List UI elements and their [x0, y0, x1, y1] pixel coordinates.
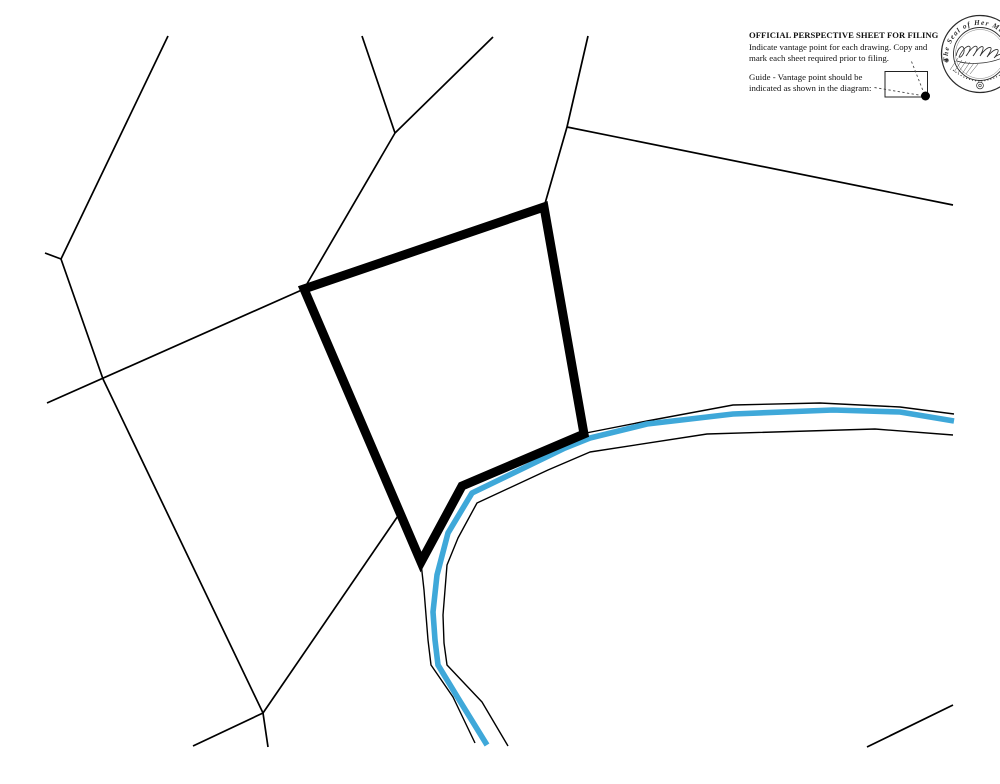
- parcel-line-south-tail: [193, 713, 263, 746]
- sheet-title: OFFICIAL PERSPECTIVE SHEET FOR FILING: [749, 30, 959, 41]
- map-canvas: The Seal of Her Maj ⊕: [0, 0, 1000, 784]
- parcel-line-south-connector: [263, 513, 400, 713]
- filing-instructions: OFFICIAL PERSPECTIVE SHEET FOR FILING In…: [749, 30, 959, 94]
- guide-line-2: indicated as shown in the diagram:: [749, 83, 877, 94]
- parcel-line-southwest-diagonal: [47, 289, 304, 403]
- seal-signature-underline: [957, 58, 1000, 63]
- parcel-line-northeast-long-line: [567, 127, 953, 205]
- river-bank-north-bank: [586, 403, 954, 433]
- guide-line-1: Guide - Vantage point should be: [749, 72, 877, 83]
- parcel-line-north-connector: [544, 36, 588, 207]
- seal-signature-scribble: [956, 46, 1000, 58]
- parcel-line-southeast-stub: [867, 705, 953, 747]
- bold-parcel-boundary: [304, 207, 584, 562]
- instruction-line-2: mark each sheet required prior to filing…: [749, 53, 959, 64]
- parcel-line-west-boundary: [61, 259, 268, 747]
- vantage-guide-caption: Guide - Vantage point should be indicate…: [749, 72, 877, 94]
- parcel-line-ridge-spur: [45, 253, 61, 259]
- map-layers: [45, 36, 954, 747]
- parcel-line-north-ridge: [61, 36, 168, 259]
- seal-bottom-ornament: [953, 70, 1000, 89]
- parcel-line-north-fork-west: [362, 36, 395, 133]
- perspective-sheet: The Seal of Her Maj ⊕ OFFICIAL PERSPECTI…: [0, 0, 1000, 784]
- river-bank-south-bank: [443, 429, 953, 746]
- seal-inner-ring2: [956, 30, 1000, 79]
- parcel-line-north-fork-east: [395, 37, 493, 133]
- instruction-line-1: Indicate vantage point for each drawing.…: [749, 42, 959, 53]
